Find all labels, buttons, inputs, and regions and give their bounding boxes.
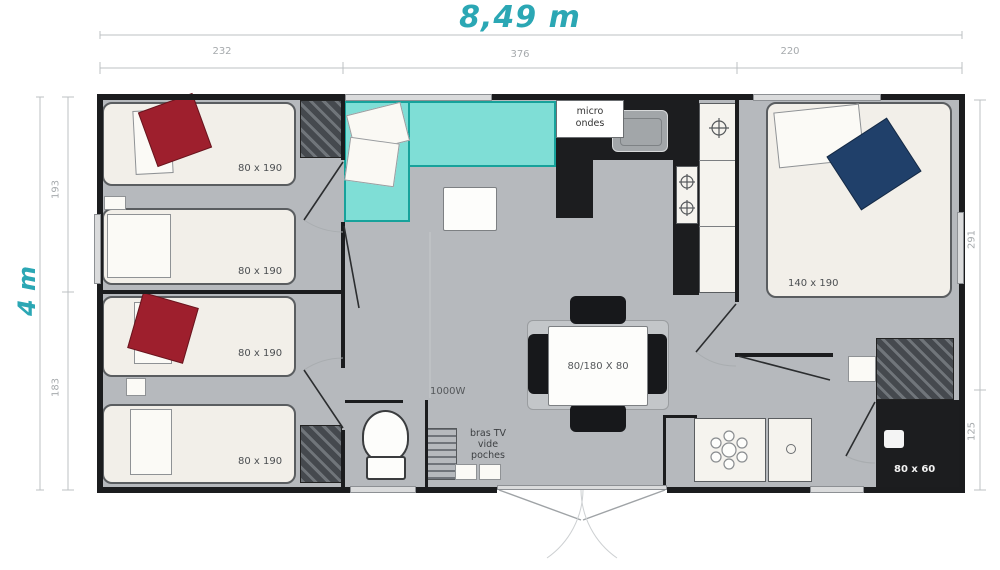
- dining-table-size-label: 80/180 X 80: [548, 361, 648, 372]
- tv-shelf-label: bras TV vide poches: [455, 428, 521, 461]
- dim-top-3: 220: [770, 46, 810, 57]
- bed-double-size-label: 140 x 190: [788, 278, 838, 289]
- bed-2-size-label: 80 x 190: [238, 266, 282, 277]
- window-master-top: [753, 94, 881, 101]
- window-bathroom-bottom: [810, 486, 864, 493]
- window-left: [94, 214, 101, 284]
- overall-height-label: 4 m: [13, 261, 39, 321]
- dim-right-1: 291: [967, 220, 978, 260]
- window-wc-bottom: [350, 486, 416, 493]
- dim-right-2: 125: [967, 412, 978, 452]
- bed-4-size-label: 80 x 190: [238, 456, 282, 467]
- dim-left-1: 193: [51, 170, 62, 210]
- dim-top-1: 232: [202, 46, 242, 57]
- bed-3-size-label: 80 x 190: [238, 348, 282, 359]
- floor-plan: 8,49 m 4 m 232 376 220 193 183 291 125 8…: [0, 0, 1000, 570]
- bed-1-size-label: 80 x 190: [238, 163, 282, 174]
- window-right: [957, 212, 964, 284]
- entrance-threshold: [497, 485, 667, 490]
- dim-left-2: 183: [51, 368, 62, 408]
- heater-label: 1000W: [430, 386, 465, 397]
- shower-size-label: 80 x 60: [894, 464, 935, 475]
- washbasin-icon: [711, 431, 747, 469]
- window-living-top: [345, 94, 492, 101]
- dim-top-2: 376: [500, 49, 540, 60]
- overall-width-label: 8,49 m: [420, 0, 620, 34]
